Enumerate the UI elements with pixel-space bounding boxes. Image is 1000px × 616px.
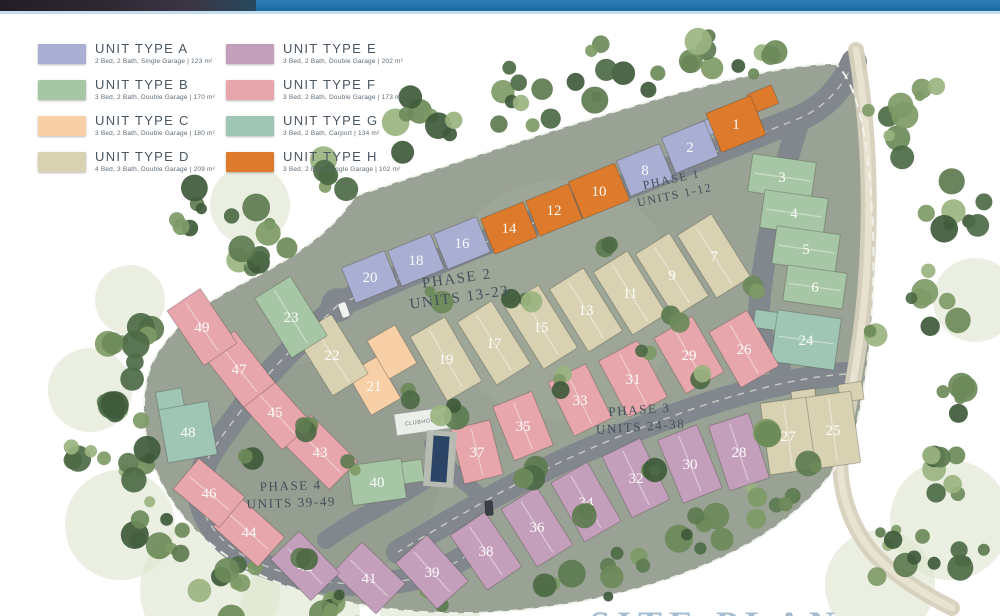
tree [64, 439, 79, 454]
tree [978, 544, 990, 556]
unit-number-27: 27 [781, 429, 797, 445]
unit-number-25: 25 [826, 423, 841, 439]
tree [430, 405, 452, 427]
tree [603, 592, 613, 602]
tree [755, 421, 781, 447]
unit-number-7: 7 [710, 249, 718, 265]
tree [930, 215, 958, 243]
tree [862, 104, 875, 117]
unit-number-12: 12 [547, 203, 562, 219]
tree [334, 590, 345, 601]
tree [731, 59, 745, 73]
unit-number-45: 45 [268, 405, 283, 421]
legend-item-G: UNIT TYPE G3 Bed, 2 Bath, Carport | 134 … [226, 114, 408, 138]
legend-title: UNIT TYPE G [283, 114, 379, 128]
unit-number-4: 4 [790, 206, 798, 222]
tree [650, 66, 665, 81]
tree [510, 74, 527, 91]
legend-swatch-H [226, 152, 274, 172]
tree [928, 78, 945, 95]
legend-item-F: UNIT TYPE F3 Bed, 2 Bath, Double Garage … [226, 78, 408, 102]
tree [883, 130, 894, 141]
tree [947, 555, 973, 581]
unit-number-11: 11 [623, 286, 637, 302]
unit-number-26: 26 [737, 342, 753, 358]
tree [748, 487, 768, 507]
tree [761, 46, 780, 65]
tree [746, 509, 766, 529]
tree [906, 292, 918, 304]
tree [238, 449, 253, 464]
legend-title: UNIT TYPE C [95, 114, 215, 128]
tree [868, 567, 887, 586]
tree-cluster [64, 439, 111, 471]
tree [915, 529, 930, 544]
phase-units-range: UNITS 39-49 [246, 493, 336, 511]
tree [711, 528, 734, 551]
legend-title: UNIT TYPE A [95, 42, 213, 56]
unit-number-14: 14 [502, 221, 518, 237]
unit-number-13: 13 [579, 303, 594, 319]
unit-number-32: 32 [629, 471, 644, 487]
tree [526, 118, 540, 132]
tree [160, 513, 173, 526]
tree [864, 325, 877, 338]
tree-cluster [918, 168, 993, 242]
tree [172, 545, 189, 562]
car [484, 500, 493, 516]
tree [939, 168, 965, 194]
legend-title: UNIT TYPE F [283, 78, 403, 92]
tree [175, 523, 190, 538]
unit-number-28: 28 [732, 445, 747, 461]
tree [945, 308, 971, 334]
tree [276, 237, 297, 258]
tree [502, 61, 516, 75]
tree [144, 496, 155, 507]
legend-swatch-B [38, 80, 86, 100]
tree [640, 82, 656, 98]
unit-number-2: 2 [686, 140, 694, 156]
tree [635, 345, 648, 358]
tree [567, 73, 585, 91]
unit-number-5: 5 [802, 242, 810, 258]
tree [531, 78, 553, 100]
unit-number-39: 39 [425, 565, 440, 581]
tree [884, 531, 902, 549]
legend-title: UNIT TYPE E [283, 42, 403, 56]
tree [888, 93, 913, 118]
legend-swatch-G [226, 116, 274, 136]
tree [943, 475, 962, 494]
tree [600, 565, 623, 588]
unit-number-48: 48 [181, 425, 196, 441]
tree [749, 283, 765, 299]
tree [102, 332, 124, 354]
tree [926, 483, 945, 502]
tree-cluster [567, 35, 657, 113]
tree [937, 385, 950, 398]
tree [611, 547, 624, 560]
legend-desc: 3 Bed, 2 Bath, Double Garage | 173 m² [283, 94, 403, 102]
unit-number-40: 40 [370, 475, 385, 491]
tree [521, 291, 542, 312]
unit-number-6: 6 [811, 280, 819, 296]
tree [669, 312, 689, 332]
legend-item-C: UNIT TYPE C3 Bed, 2 Bath, Double Garage … [38, 114, 220, 138]
legend-swatch-A [38, 44, 86, 64]
tree [188, 579, 212, 603]
tree [85, 445, 97, 457]
unit-number-44: 44 [242, 525, 258, 541]
unit-number-1: 1 [732, 117, 740, 133]
tree [939, 293, 956, 310]
site-plan-page: 1234567891011121314151617181920212223242… [0, 0, 1000, 616]
tree [513, 95, 529, 111]
legend-item-H: UNIT TYPE H3 Bed, 2 Bath, Single Garage … [226, 150, 408, 174]
tree [533, 573, 557, 597]
unit-number-38: 38 [479, 544, 494, 560]
legend-title: UNIT TYPE D [95, 150, 215, 164]
tree [131, 510, 149, 528]
unit-number-46: 46 [202, 486, 218, 502]
phase-name: PHASE 4 [259, 477, 322, 494]
legend-swatch-C [38, 116, 86, 136]
tree [242, 194, 270, 222]
tree [778, 497, 792, 511]
tree [581, 87, 608, 114]
tree [230, 577, 242, 589]
tree [572, 504, 597, 529]
tree [748, 68, 759, 79]
legend-desc: 3 Bed, 2 Bath, Single Garage | 102 m² [283, 166, 401, 174]
tree [334, 177, 358, 201]
tree [552, 381, 570, 399]
tree [120, 367, 144, 391]
tree [810, 461, 821, 472]
unit-number-9: 9 [668, 268, 676, 284]
car-body [484, 500, 493, 516]
tree-cluster [490, 61, 561, 133]
unit-number-22: 22 [325, 348, 340, 364]
legend-desc: 3 Bed, 2 Bath, Carport | 134 m² [283, 130, 379, 138]
tree [975, 193, 992, 210]
unit-number-3: 3 [778, 170, 786, 186]
legend-desc: 2 Bed, 2 Bath, Single Garage | 123 m² [95, 58, 213, 66]
unit-number-16: 16 [455, 236, 471, 252]
grass-patch [65, 470, 175, 580]
legend-title: UNIT TYPE H [283, 150, 401, 164]
unit-number-19: 19 [439, 352, 454, 368]
tree [340, 454, 355, 469]
unit-number-49: 49 [195, 320, 210, 336]
unit-number-43: 43 [313, 445, 328, 461]
unit-number-35: 35 [516, 419, 531, 435]
unit-number-23: 23 [284, 310, 299, 326]
pool [423, 430, 457, 488]
tree [928, 557, 941, 570]
tree [636, 559, 650, 573]
unit-number-17: 17 [487, 336, 503, 352]
tree [445, 112, 462, 129]
tree [228, 236, 255, 263]
legend-desc: 3 Bed, 2 Bath, Double Garage | 170 m² [95, 94, 215, 102]
tree [907, 551, 921, 565]
tree [890, 145, 914, 169]
tree [685, 28, 712, 55]
tree [701, 57, 723, 79]
tree [694, 542, 706, 554]
tree [173, 218, 190, 235]
tree-cluster [937, 373, 978, 423]
legend-item-B: UNIT TYPE B3 Bed, 2 Bath, Double Garage … [38, 78, 220, 102]
tree [181, 175, 208, 202]
tree [541, 109, 561, 129]
tree [595, 59, 617, 81]
tree [921, 317, 940, 336]
tree [558, 560, 586, 588]
tree [687, 507, 704, 524]
tree [966, 214, 989, 237]
tree [875, 527, 885, 537]
tree-cluster [650, 28, 723, 81]
unit-number-21: 21 [367, 379, 382, 395]
tree [401, 390, 420, 409]
legend-swatch-D [38, 152, 86, 172]
site-plan-title: SITE PLAN [590, 603, 842, 616]
legend-title: UNIT TYPE B [95, 78, 215, 92]
tree [296, 548, 318, 570]
tree [121, 467, 146, 492]
tree [585, 45, 597, 57]
tree-cluster [169, 175, 208, 237]
tree [922, 446, 940, 464]
tree [949, 404, 968, 423]
tree [224, 208, 239, 223]
tree [101, 391, 129, 419]
tree [133, 412, 150, 429]
unit-number-47: 47 [232, 362, 248, 378]
tree [256, 221, 281, 246]
unit-number-31: 31 [626, 372, 641, 388]
pool-water [430, 435, 449, 482]
unit-number-37: 37 [470, 445, 486, 461]
tree [694, 365, 711, 382]
legend-desc: 3 Bed, 2 Bath, Double Garage | 202 m² [283, 58, 403, 66]
legend-item-A: UNIT TYPE A2 Bed, 2 Bath, Single Garage … [38, 42, 220, 66]
tree [196, 203, 207, 214]
legend-item-D: UNIT TYPE D4 Bed, 3 Bath, Double Garage … [38, 150, 220, 174]
tree [601, 237, 618, 254]
tree [97, 451, 111, 465]
tree [490, 115, 507, 132]
tree [954, 392, 966, 404]
unit-number-41: 41 [362, 571, 377, 587]
tree [921, 264, 935, 278]
tree [134, 436, 161, 463]
unit-number-33: 33 [573, 393, 588, 409]
legend-item-E: UNIT TYPE E3 Bed, 2 Bath, Double Garage … [226, 42, 408, 66]
tree [681, 529, 693, 541]
unit-number-29: 29 [682, 348, 697, 364]
unit-number-18: 18 [409, 253, 424, 269]
tree [295, 417, 311, 433]
legend-desc: 3 Bed, 2 Bath, Double Garage | 180 m² [95, 130, 215, 138]
unit-number-24: 24 [799, 333, 815, 349]
tree [513, 468, 533, 488]
unit-type-legend: UNIT TYPE A2 Bed, 2 Bath, Single Garage … [38, 42, 418, 174]
legend-swatch-F [226, 80, 274, 100]
tree [122, 330, 150, 358]
unit-number-10: 10 [592, 184, 607, 200]
legend-desc: 4 Bed, 3 Bath, Double Garage | 209 m² [95, 166, 215, 174]
unit-number-36: 36 [530, 520, 546, 536]
legend-swatch-E [226, 44, 274, 64]
unit-number-15: 15 [534, 320, 549, 336]
unit-number-20: 20 [363, 270, 378, 286]
unit-number-30: 30 [683, 457, 698, 473]
tree [918, 205, 935, 222]
tree [649, 465, 661, 477]
